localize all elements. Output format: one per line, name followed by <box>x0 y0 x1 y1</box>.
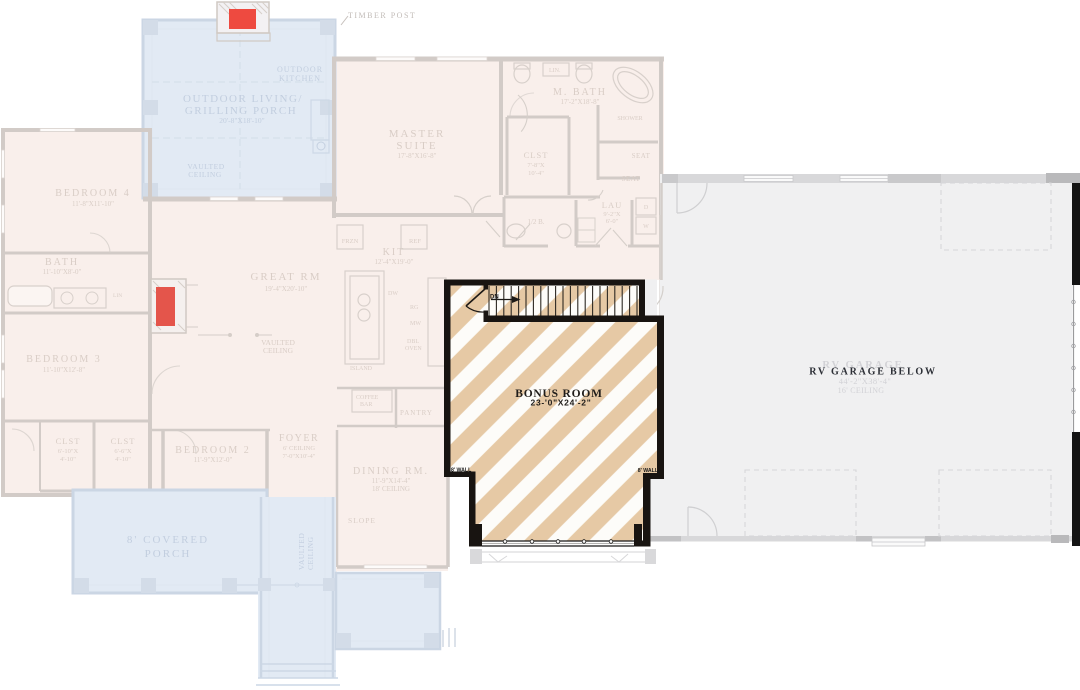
svg-text:CEILING: CEILING <box>263 346 294 355</box>
svg-text:11'-8"X11'-10": 11'-8"X11'-10" <box>72 200 114 208</box>
svg-text:19'-4"X20'-10": 19'-4"X20'-10" <box>265 285 308 293</box>
svg-text:W: W <box>643 224 649 230</box>
svg-text:11'-9"X14'-4": 11'-9"X14'-4" <box>372 477 411 485</box>
svg-text:17'-2"X18'-8": 17'-2"X18'-8" <box>561 98 600 106</box>
svg-text:23-'0"X24'-2": 23-'0"X24'-2" <box>531 398 592 408</box>
svg-text:DBL: DBL <box>407 339 419 345</box>
svg-text:9'-2"X: 9'-2"X <box>603 211 620 218</box>
svg-text:SHOWER: SHOWER <box>617 116 642 122</box>
svg-text:6'-6"X: 6'-6"X <box>114 448 131 455</box>
svg-text:VAULTED: VAULTED <box>297 533 306 570</box>
svg-text:OVEN: OVEN <box>405 346 422 352</box>
svg-text:LIN: LIN <box>113 293 122 299</box>
svg-text:FRZN: FRZN <box>342 238 359 245</box>
svg-text:KITCHEN: KITCHEN <box>279 74 321 83</box>
svg-text:SEAT: SEAT <box>632 152 651 160</box>
svg-text:CEILING: CEILING <box>188 170 222 179</box>
svg-text:CLST: CLST <box>111 436 136 446</box>
svg-text:REF: REF <box>409 238 421 245</box>
svg-text:MASTER: MASTER <box>389 128 446 140</box>
svg-text:16' CEILING: 16' CEILING <box>838 386 885 395</box>
svg-text:12'-4"X19'-0": 12'-4"X19'-0" <box>375 258 414 266</box>
svg-text:DW: DW <box>388 291 398 297</box>
svg-text:CLST: CLST <box>56 436 81 446</box>
svg-text:OUTDOOR: OUTDOOR <box>277 65 323 74</box>
svg-text:LAU: LAU <box>602 200 622 210</box>
svg-text:OUTDOOR LIVING/: OUTDOOR LIVING/ <box>183 93 303 105</box>
svg-text:BEDROOM 3: BEDROOM 3 <box>26 354 102 365</box>
svg-text:SLOPE: SLOPE <box>348 516 376 525</box>
svg-text:4'-10": 4'-10" <box>60 456 76 463</box>
svg-text:PANTRY: PANTRY <box>400 409 433 417</box>
svg-text:TIMBER POST: TIMBER POST <box>348 11 416 20</box>
svg-text:MW: MW <box>410 321 421 327</box>
svg-text:PORCH: PORCH <box>145 548 192 560</box>
svg-text:BATH: BATH <box>45 257 79 268</box>
svg-text:FOYER: FOYER <box>279 433 319 444</box>
svg-text:6'-10"X: 6'-10"X <box>58 448 79 455</box>
svg-text:18' CEILING: 18' CEILING <box>372 485 410 493</box>
svg-text:44'-2"X38'-4": 44'-2"X38'-4" <box>839 376 892 386</box>
svg-text:CEILING: CEILING <box>306 536 315 570</box>
svg-text:10'-4": 10'-4" <box>528 170 544 177</box>
svg-text:CLST: CLST <box>524 150 549 160</box>
svg-text:BAR: BAR <box>360 402 372 408</box>
svg-text:LIN.: LIN. <box>549 68 561 74</box>
svg-text:RV GARAGE BELOW: RV GARAGE BELOW <box>809 367 937 378</box>
svg-text:8' WALL: 8' WALL <box>638 468 659 474</box>
svg-text:8' WALL: 8' WALL <box>451 468 472 474</box>
svg-text:SEAT: SEAT <box>622 175 641 183</box>
svg-text:BEDROOM 2: BEDROOM 2 <box>175 445 251 456</box>
svg-text:11'-10"X12'-8": 11'-10"X12'-8" <box>43 366 85 374</box>
svg-text:7'-8"X: 7'-8"X <box>527 162 544 169</box>
svg-text:4'-10": 4'-10" <box>115 456 131 463</box>
svg-text:11'-10"X8'-0": 11'-10"X8'-0" <box>43 268 82 276</box>
svg-text:8' COVERED: 8' COVERED <box>127 534 209 546</box>
svg-text:1/2 B.: 1/2 B. <box>527 218 544 226</box>
svg-text:D: D <box>644 205 649 211</box>
svg-text:ISLAND: ISLAND <box>350 366 373 372</box>
svg-text:BEDROOM 4: BEDROOM 4 <box>55 188 131 199</box>
svg-text:17'-8"X16'-8": 17'-8"X16'-8" <box>398 152 437 160</box>
svg-text:7'-0"X10'-4": 7'-0"X10'-4" <box>283 453 316 460</box>
svg-text:M. BATH: M. BATH <box>553 87 607 98</box>
svg-text:GREAT RM: GREAT RM <box>250 271 321 283</box>
svg-text:DINING RM.: DINING RM. <box>353 466 429 477</box>
svg-text:20'-8"X18'-10": 20'-8"X18'-10" <box>219 116 265 125</box>
svg-text:SUITE: SUITE <box>396 140 437 152</box>
svg-text:COFFEE: COFFEE <box>356 395 379 401</box>
svg-text:RG: RG <box>410 305 419 311</box>
svg-text:6' CEILING: 6' CEILING <box>283 445 315 452</box>
svg-text:6'-0": 6'-0" <box>606 218 619 225</box>
svg-text:11'-9"X12'-0": 11'-9"X12'-0" <box>194 456 233 464</box>
